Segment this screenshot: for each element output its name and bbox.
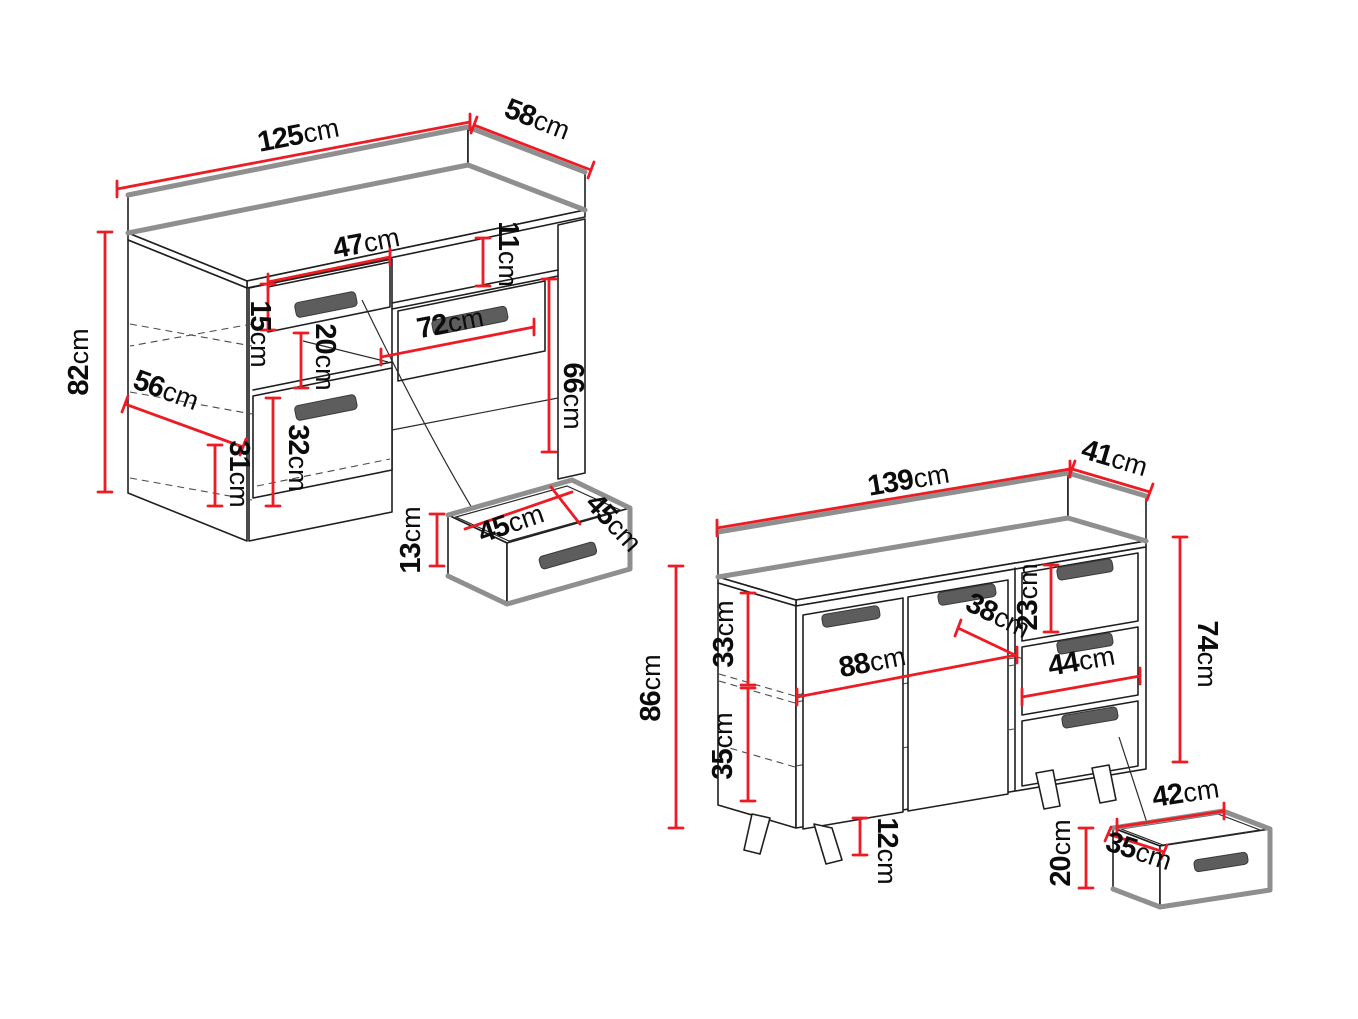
dim-desk-niche-height-label: 11cm <box>492 221 524 287</box>
dim-desk-shelf-opening-label: 20cm <box>309 323 341 390</box>
dim-desk-door-height-label: 32cm <box>282 424 314 491</box>
dim-desk-niche-height-line <box>476 238 490 286</box>
dim-sideboard-pullout-height-label: 20cm <box>1045 819 1077 886</box>
dim-sideboard-carcass-height-label: 74cm <box>1191 620 1223 687</box>
dim-desk-knee-height-label: 66cm <box>557 362 589 429</box>
dim-desk-drawer-height-label: 15cm <box>244 300 276 367</box>
dim-sideboard-height-line <box>669 566 683 828</box>
sideboard-left-door <box>803 598 903 829</box>
dim-sideboard-height-label: 86cm <box>635 654 667 721</box>
dim-sideboard-carcass-height-line <box>1173 537 1187 762</box>
sideboard-leg-front-left <box>744 814 770 854</box>
sideboard-leg-front-mid <box>814 824 842 864</box>
dim-sideboard-depth-label: 41cm <box>1078 434 1152 484</box>
desk-right-side-panel <box>558 219 585 479</box>
dim-sideboard-pullout-height-line <box>1079 828 1093 888</box>
dim-desk-inner-bottom-label: 31cm <box>223 440 255 507</box>
desk-knee-back-edge <box>392 398 558 430</box>
dim-sideboard-lower-inner-label: 35cm <box>707 712 739 779</box>
dim-sideboard-leg-height-line <box>853 818 867 855</box>
sideboard-group: 139cm 41cm 86cm 33cm 35cm 88cm 38cm 23cm… <box>635 434 1270 907</box>
dim-desk-pullout-height-label: 13cm <box>395 506 427 573</box>
dim-desk-width-label: 125cm <box>255 112 342 159</box>
desk-group: 125cm 58cm 82cm 47cm 15cm 20cm 32cm 31cm… <box>63 93 648 604</box>
dim-desk-pullout-height-line <box>430 514 444 566</box>
dim-sideboard-upper-inner-label: 33cm <box>708 600 740 667</box>
dim-desk-height-label: 82cm <box>63 328 95 395</box>
dim-sideboard-pullout-width-label: 42cm <box>1150 772 1221 814</box>
dim-sideboard-leg-height-label: 12cm <box>871 817 903 884</box>
furniture-dimensions-diagram: 125cm 58cm 82cm 47cm 15cm 20cm 32cm 31cm… <box>0 0 1358 1019</box>
dim-sideboard-top-drawer-label: 23cm <box>1012 563 1044 630</box>
dim-desk-height-line <box>98 232 112 492</box>
